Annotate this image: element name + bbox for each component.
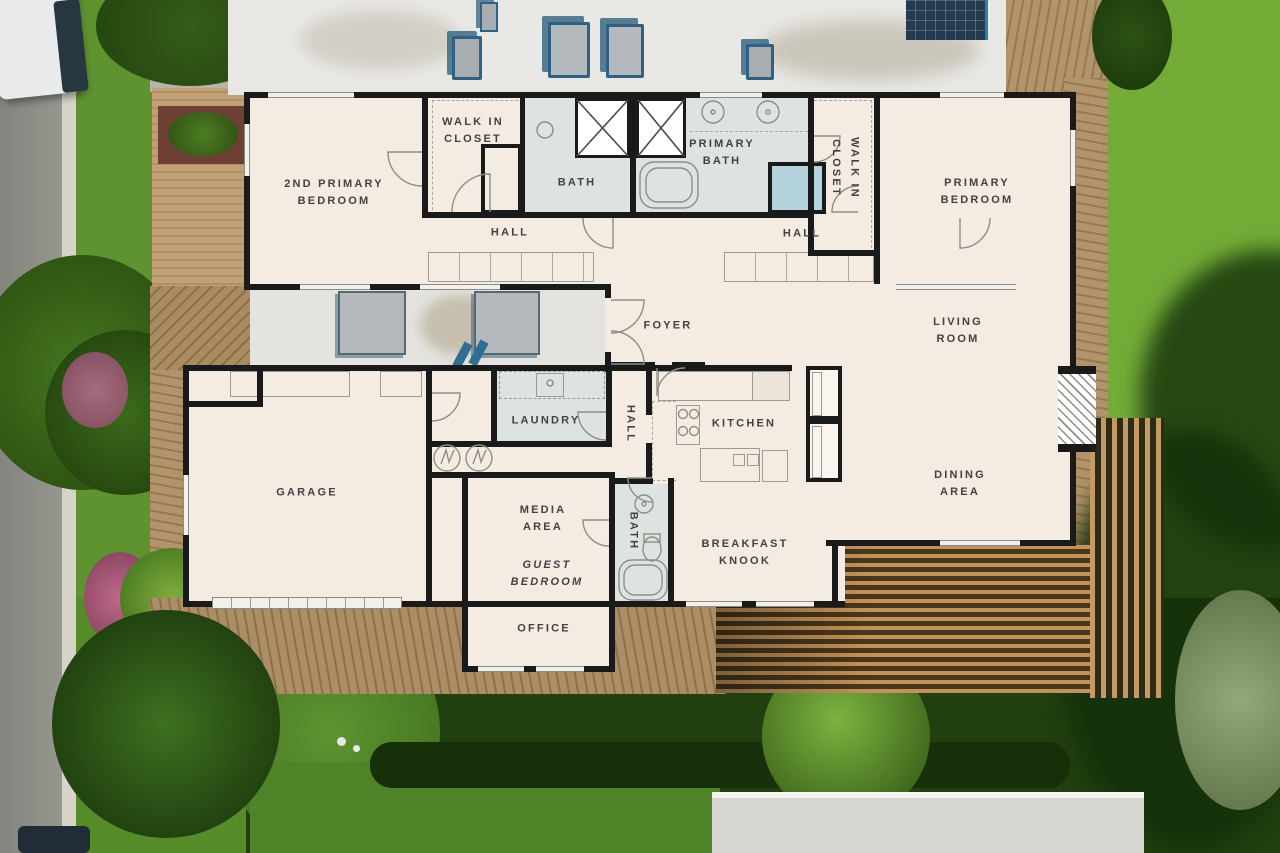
door-arc	[578, 412, 606, 440]
sink-icon	[635, 495, 653, 513]
fixture-linework	[0, 0, 1280, 853]
room-label-hall-lower: HALL	[621, 405, 640, 443]
room-label-hall-upper-right: HALL	[783, 225, 821, 242]
room-label-foyer: FOYER	[644, 317, 693, 334]
sink-icon	[537, 122, 553, 138]
room-label-guest-bedroom: GUEST BEDROOM	[511, 557, 584, 591]
door-arc	[388, 152, 422, 186]
shower-icon	[638, 100, 684, 156]
shower-icon	[577, 100, 628, 156]
washer-icon	[434, 445, 460, 471]
toilet-icon	[643, 537, 661, 561]
dryer-icon	[466, 445, 492, 471]
room-label-walk-in-closet-2: WALK IN CLOSET	[826, 137, 863, 199]
aerial-floorplan-scene: 2ND PRIMARY BEDROOM WALK IN CLOSET BATH …	[0, 0, 1280, 853]
room-label-media-area: MEDIA AREA	[520, 502, 566, 536]
door-arc	[452, 174, 490, 212]
door-arc	[628, 478, 652, 502]
room-label-hall-upper-left: HALL	[491, 224, 529, 241]
door-arc	[611, 331, 644, 364]
room-label-living-room: LIVING ROOM	[933, 314, 983, 348]
door-arc	[432, 393, 460, 421]
door-arc	[611, 300, 644, 333]
room-label-laundry: LAUNDRY	[512, 412, 581, 429]
bathtub-icon	[619, 560, 667, 600]
room-label-breakfast-knook: BREAKFAST KNOOK	[701, 536, 788, 570]
door-arc	[657, 368, 685, 396]
sink-icon	[702, 101, 724, 123]
room-label-dining-area: DINING AREA	[934, 467, 986, 501]
room-label-kitchen: KITCHEN	[712, 415, 776, 432]
toilet-tank	[644, 534, 660, 542]
door-arc	[583, 520, 609, 546]
door-arc	[583, 218, 613, 248]
sink-icon	[757, 101, 779, 123]
door-arc	[960, 218, 990, 248]
room-label-primary-bath: PRIMARY BATH	[689, 136, 755, 170]
stove-burner	[679, 410, 688, 419]
room-label-primary-bedroom: PRIMARY BEDROOM	[941, 175, 1014, 209]
room-label-garage: GARAGE	[276, 484, 337, 501]
room-label-bath-1: BATH	[558, 174, 597, 191]
room-label-office: OFFICE	[517, 620, 571, 637]
room-label-bath-2: BATH	[624, 512, 643, 551]
room-label-walk-in-closet-1: WALK IN CLOSET	[442, 114, 504, 148]
room-label-2nd-primary-bedroom: 2ND PRIMARY BEDROOM	[284, 176, 384, 210]
